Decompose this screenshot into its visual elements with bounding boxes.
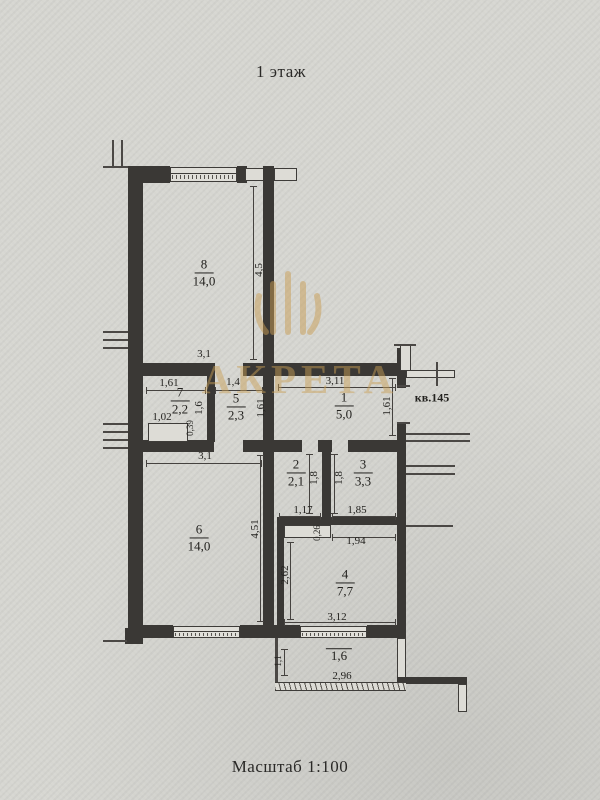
room-4-label: 47,7 <box>336 567 355 598</box>
corridor-top-wall <box>406 370 455 378</box>
entry-door-jamb-top <box>397 385 410 387</box>
floor-plan-page: 1 этаж АКРЕТА 814,072,252,315,022,133,36… <box>0 0 600 800</box>
dim-duct-offset: 0,26 <box>312 525 322 541</box>
left-stub-1b <box>103 339 128 341</box>
bottom-right-jog <box>397 677 467 684</box>
dimline-room3-bottom <box>332 516 396 517</box>
dimline-balcony-depth <box>284 649 285 676</box>
dim-room2-width: 1,17 <box>293 504 312 516</box>
room-area: 5,0 <box>335 406 354 422</box>
dim-niche-depth: 0,39 <box>185 420 195 436</box>
dim-niche-width: 1,02 <box>152 411 171 423</box>
bottom-wall-mid <box>240 625 300 638</box>
bottom-right-stub <box>458 684 467 712</box>
room-area: 2,3 <box>227 407 246 423</box>
right-stub-1b <box>406 440 470 442</box>
top-wall-right <box>263 166 274 183</box>
room-2-label: 22,1 <box>287 457 306 488</box>
dimline-room2-bottom <box>279 516 321 517</box>
dim-room6-height: 4,51 <box>249 519 261 538</box>
room-number: 8 <box>195 257 214 273</box>
dim-room4-width: 3,12 <box>327 611 346 623</box>
left-stub-vert-a <box>112 140 114 167</box>
room-number: 2 <box>287 457 306 473</box>
bottom-wall-right <box>367 625 397 638</box>
room4-balcony-window <box>300 626 367 638</box>
dim-balcony-depth: 1,1 <box>273 655 283 666</box>
entry-door-jamb-bottom <box>397 422 410 424</box>
hall-bottom-wall-b <box>243 440 302 452</box>
dim-room3-height: 1,8 <box>333 471 345 485</box>
room6-window <box>173 626 240 638</box>
room-3-label: 33,3 <box>354 457 373 488</box>
room-number: 4 <box>336 567 355 583</box>
left-stub-bottom <box>103 640 127 642</box>
neighbor-wall-stub-top <box>274 168 297 181</box>
room8-window <box>170 167 237 182</box>
right-stub-2a <box>406 465 455 467</box>
right-stub-2b <box>406 473 455 475</box>
wall-room2-room3 <box>322 452 331 524</box>
right-stub-1a <box>406 433 470 435</box>
left-stub-top-edge <box>103 166 128 168</box>
dim-room2-height: 1,8 <box>308 471 320 485</box>
left-stub-1c <box>103 347 128 349</box>
corridor-vert-wall <box>400 345 411 371</box>
left-stub-2b <box>103 431 128 433</box>
dim-balcony-width: 2,96 <box>332 670 351 682</box>
dim-room6-width: 3,1 <box>198 450 212 462</box>
room-area: 1,6 <box>326 648 352 664</box>
room-area: 14,0 <box>193 273 216 289</box>
watermark-crown-icon <box>242 268 334 344</box>
room-area: 14,0 <box>188 538 211 554</box>
balcony-railing <box>275 682 406 691</box>
dim-room4-height: 2,62 <box>279 565 291 584</box>
top-wall-pier <box>245 168 264 181</box>
room7-niche <box>148 423 188 442</box>
outer-wall-right-low <box>397 638 406 678</box>
left-stub-vert-b <box>121 140 123 167</box>
left-stub-1a <box>103 331 128 333</box>
room-area: 7,7 <box>336 583 355 599</box>
watermark-text: АКРЕТА <box>202 355 399 403</box>
corridor-cross-tick <box>436 362 438 386</box>
rooms23-bottom-wall <box>277 517 400 525</box>
left-stub-2c <box>103 439 128 441</box>
room-7-label: 72,2 <box>171 385 190 416</box>
corridor-top-cap <box>394 344 416 346</box>
outer-wall-right-main <box>397 423 406 638</box>
left-stub-2a <box>103 423 128 425</box>
room-area: 2,2 <box>171 401 190 417</box>
room-number: 6 <box>190 522 209 538</box>
dim-room3-width: 1,85 <box>347 504 366 516</box>
right-stub-3 <box>406 525 453 527</box>
bottom-left-step <box>125 628 143 644</box>
duct-under-room2 <box>284 525 331 538</box>
dimline-room6-top <box>146 463 262 464</box>
dim-room7-height: 1,6 <box>193 401 205 415</box>
room-area: 3,3 <box>354 473 373 489</box>
outer-wall-left <box>128 166 143 628</box>
hall-bottom-wall-c <box>318 440 332 452</box>
left-stub-2d <box>103 447 128 449</box>
room-6-label: 614,0 <box>188 522 211 553</box>
dim-room7-width: 1,61 <box>159 377 178 389</box>
apartment-number-label: кв.145 <box>415 391 449 406</box>
dim-room4-top-width: 1,94 <box>346 535 365 547</box>
room-8-label: 814,0 <box>193 257 216 288</box>
room-area: 2,1 <box>287 473 306 489</box>
balcony-label: 1,6 <box>326 648 352 664</box>
room-number: 3 <box>354 457 373 473</box>
